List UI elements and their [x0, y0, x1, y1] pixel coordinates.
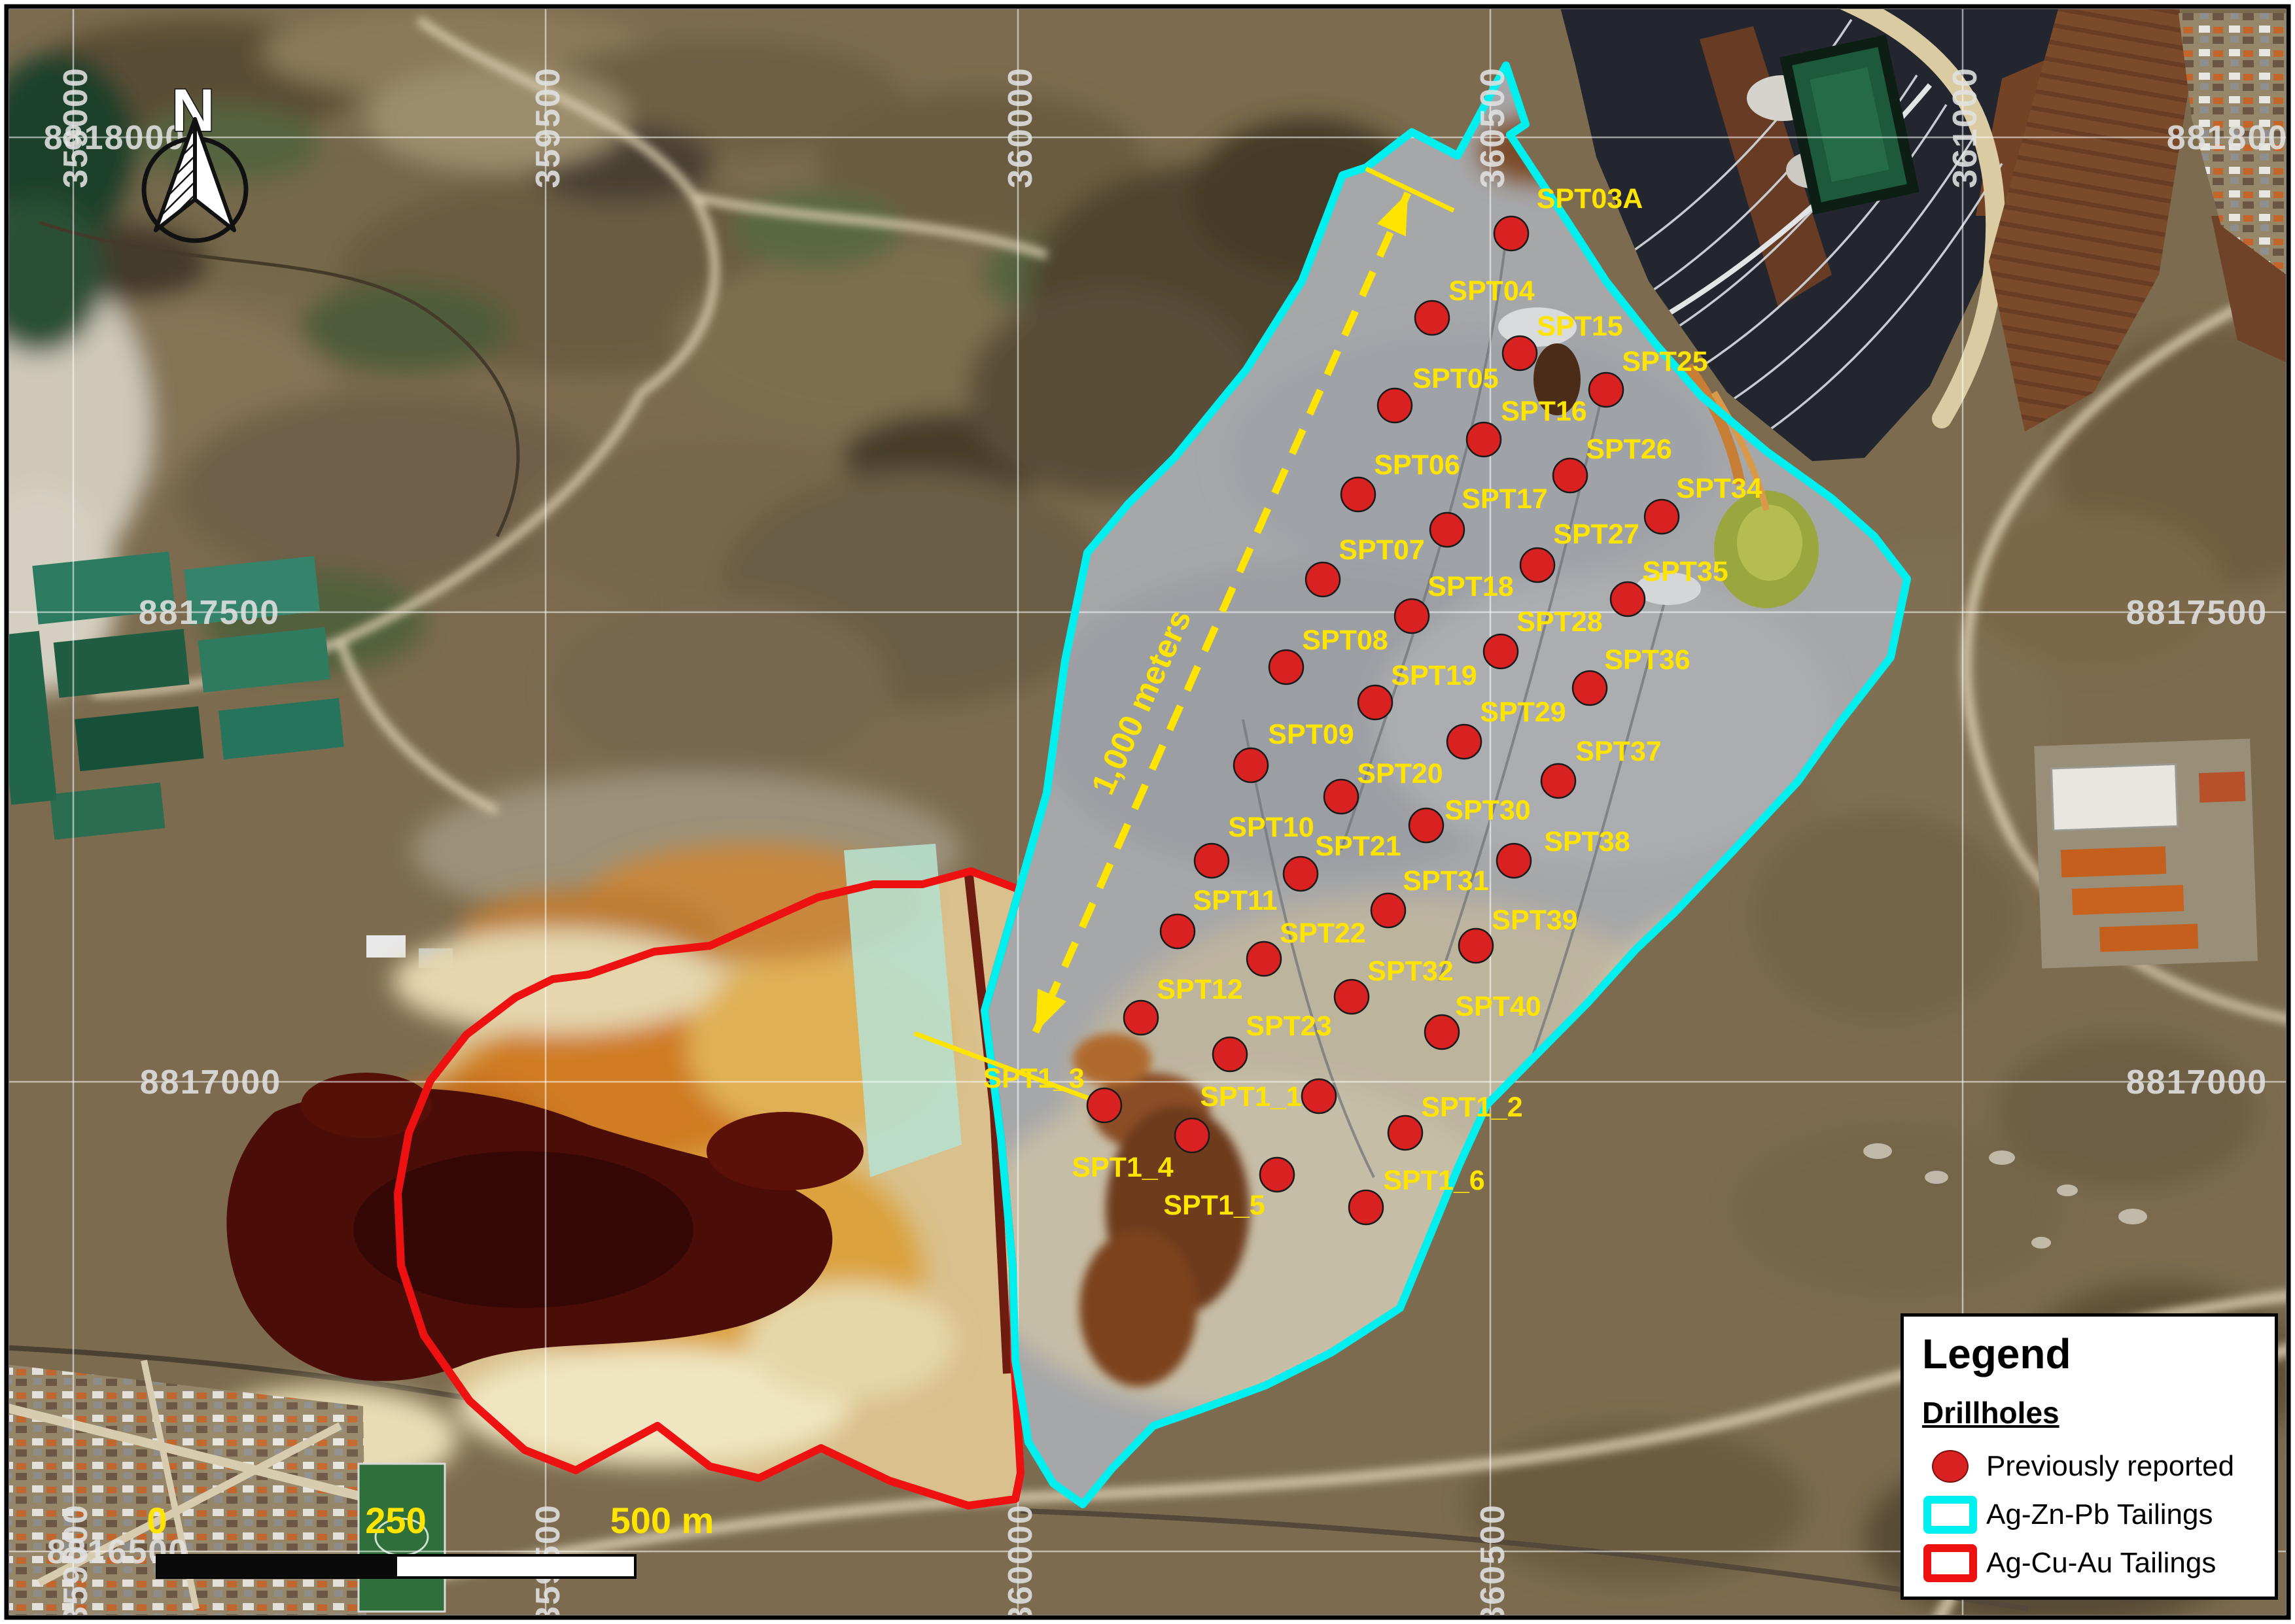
legend-red-swatch-icon [1923, 1544, 1977, 1582]
drillhole-dot-SPT21[interactable] [1284, 857, 1318, 891]
drillhole-dot-SPT1_6[interactable] [1349, 1190, 1383, 1224]
drillhole-dot-SPT27[interactable] [1520, 548, 1554, 582]
drillhole-dot-SPT19[interactable] [1358, 685, 1392, 719]
processing-facility [2034, 738, 2258, 968]
legend-item-label: Ag-Zn-Pb Tailings [1986, 1498, 2213, 1531]
drillhole-dot-SPT23[interactable] [1213, 1037, 1247, 1071]
drillhole-label-SPT1_5: SPT1_5 [1163, 1190, 1265, 1221]
drillhole-dot-SPT1_5[interactable] [1260, 1158, 1294, 1192]
grid-label-top: 359500 [529, 67, 567, 188]
grid-label-top: 361000 [1946, 67, 1984, 188]
legend-item-label: Previously reported [1986, 1450, 2234, 1483]
drillhole-label-SPT26: SPT26 [1586, 434, 1672, 465]
drillhole-dot-SPT36[interactable] [1573, 671, 1607, 705]
drillhole-label-SPT05: SPT05 [1412, 363, 1498, 394]
drillhole-dot-SPT07[interactable] [1306, 562, 1340, 596]
drillhole-dot-SPT18[interactable] [1395, 599, 1429, 633]
drillhole-label-SPT27: SPT27 [1553, 519, 1639, 550]
drillhole-label-SPT09: SPT09 [1268, 719, 1354, 750]
drillhole-label-SPT25: SPT25 [1622, 346, 1708, 377]
legend-item-label: Ag-Cu-Au Tailings [1986, 1547, 2216, 1580]
drillhole-label-SPT37: SPT37 [1575, 736, 1661, 767]
drillhole-label-SPT36: SPT36 [1604, 644, 1690, 676]
drillhole-label-SPT40: SPT40 [1455, 991, 1541, 1022]
grid-label-bottom: 360500 [1474, 1504, 1512, 1624]
drillhole-label-SPT1_4: SPT1_4 [1072, 1152, 1173, 1183]
drillhole-dot-SPT40[interactable] [1425, 1015, 1459, 1049]
drillhole-label-SPT07: SPT07 [1339, 534, 1424, 566]
drillhole-dot-SPT32[interactable] [1335, 980, 1369, 1014]
drillhole-dot-SPT34[interactable] [1645, 500, 1679, 534]
drillhole-dot-SPT1_1[interactable] [1302, 1079, 1336, 1113]
drillhole-label-SPT03A: SPT03A [1537, 183, 1643, 215]
legend-items: Previously reportedAg-Zn-Pb TailingsAg-C… [1922, 1442, 2275, 1587]
drillhole-dot-SPT1_4[interactable] [1175, 1118, 1209, 1152]
drillhole-label-SPT22: SPT22 [1280, 918, 1365, 949]
legend-title: Legend [1922, 1330, 2275, 1378]
drillhole-dot-SPT26[interactable] [1553, 458, 1587, 492]
grid-label-left: 8817000 [140, 1063, 281, 1101]
drillhole-label-SPT08: SPT08 [1302, 625, 1388, 656]
drillhole-dot-SPT22[interactable] [1247, 942, 1281, 976]
scalebar-label: 250 [365, 1500, 426, 1541]
drillhole-label-SPT19: SPT19 [1391, 660, 1477, 691]
drillhole-label-SPT12: SPT12 [1157, 974, 1242, 1005]
drillhole-dot-SPT37[interactable] [1541, 764, 1575, 798]
drillhole-label-SPT11: SPT11 [1193, 885, 1277, 916]
drillhole-dot-SPT04[interactable] [1415, 301, 1449, 335]
drillhole-dot-SPT31[interactable] [1371, 893, 1405, 927]
drillhole-label-SPT20: SPT20 [1357, 758, 1443, 789]
legend-section-drillholes: Drillholes [1922, 1395, 2275, 1430]
drillhole-label-SPT28: SPT28 [1516, 606, 1602, 638]
drillhole-dot-SPT17[interactable] [1430, 513, 1464, 547]
drillhole-label-SPT10: SPT10 [1228, 812, 1314, 843]
drillhole-label-SPT31: SPT31 [1403, 865, 1488, 897]
drillhole-label-SPT1_1: SPT1_1 [1200, 1081, 1301, 1113]
grid-label-right: 8817000 [2126, 1063, 2268, 1101]
grid-label-top: 360500 [1474, 67, 1512, 188]
grid-label-right: 8817500 [2126, 594, 2268, 632]
legend-panel: Legend Drillholes Previously reportedAg-… [1901, 1313, 2278, 1600]
grid-label-left: 8817500 [139, 594, 280, 632]
drillhole-dot-SPT15[interactable] [1503, 336, 1537, 370]
legend-item: Ag-Zn-Pb Tailings [1922, 1491, 2275, 1539]
scalebar-label: 500 m [610, 1500, 714, 1541]
drillhole-dot-SPT16[interactable] [1467, 423, 1501, 457]
legend-item: Previously reported [1922, 1442, 2275, 1491]
drillhole-label-SPT1_3: SPT1_3 [983, 1063, 1084, 1094]
drillhole-label-SPT39: SPT39 [1492, 905, 1577, 936]
drillhole-dot-SPT12[interactable] [1124, 1001, 1158, 1035]
drillhole-dot-SPT35[interactable] [1611, 582, 1645, 616]
drillhole-label-SPT1_2: SPT1_2 [1421, 1092, 1522, 1123]
drillhole-dot-SPT08[interactable] [1269, 650, 1303, 684]
drillhole-dot-SPT1_2[interactable] [1388, 1116, 1422, 1150]
drillhole-label-SPT17: SPT17 [1462, 483, 1547, 515]
drillhole-label-SPT34: SPT34 [1676, 473, 1762, 504]
grid-label-right: 8818000 [2167, 119, 2295, 157]
drillhole-dot-SPT09[interactable] [1234, 748, 1268, 782]
drillhole-dot-SPT11[interactable] [1161, 914, 1195, 948]
drillhole-dot-SPT29[interactable] [1447, 725, 1481, 759]
drillhole-dot-SPT20[interactable] [1324, 780, 1358, 814]
drillhole-label-SPT23: SPT23 [1246, 1011, 1331, 1042]
drillhole-dot-SPT10[interactable] [1195, 844, 1229, 878]
drillhole-label-SPT38: SPT38 [1544, 826, 1630, 857]
drillhole-label-SPT32: SPT32 [1367, 956, 1453, 987]
legend-cyan-swatch-icon [1923, 1496, 1977, 1534]
drillhole-dot-SPT28[interactable] [1484, 634, 1518, 668]
drillhole-label-SPT18: SPT18 [1428, 571, 1513, 602]
drillhole-label-SPT35: SPT35 [1642, 556, 1728, 587]
drillhole-label-SPT16: SPT16 [1501, 396, 1586, 427]
drillhole-dot-SPT30[interactable] [1409, 808, 1443, 842]
scalebar-label: 0 [147, 1500, 167, 1541]
drillhole-label-SPT15: SPT15 [1537, 311, 1622, 342]
drillhole-dot-SPT03A[interactable] [1494, 216, 1528, 251]
drillhole-label-SPT1_6: SPT1_6 [1383, 1165, 1484, 1196]
drillhole-label-SPT21: SPT21 [1315, 831, 1401, 862]
drillhole-label-SPT29: SPT29 [1480, 697, 1566, 728]
grid-label-top: 360000 [1002, 67, 1040, 188]
drillhole-dot-SPT25[interactable] [1589, 373, 1623, 407]
legend-dot-icon [1932, 1450, 1969, 1483]
drillhole-dot-SPT05[interactable] [1378, 389, 1412, 423]
scalebar-black-segment [157, 1555, 397, 1578]
drillhole-dot-SPT38[interactable] [1497, 844, 1531, 878]
drillhole-dot-SPT39[interactable] [1459, 929, 1493, 963]
drillhole-label-SPT06: SPT06 [1374, 449, 1460, 481]
drillhole-label-SPT04: SPT04 [1448, 275, 1535, 307]
drillhole-dot-SPT1_3[interactable] [1087, 1088, 1121, 1122]
drillhole-dot-SPT06[interactable] [1341, 477, 1375, 511]
legend-item: Ag-Cu-Au Tailings [1922, 1539, 2275, 1587]
drillhole-label-SPT30: SPT30 [1445, 795, 1530, 826]
grid-label-bottom: 360000 [1002, 1504, 1040, 1624]
map-page: 1,000 meters SPT03ASPT04SPT15SPT25SPT05S… [0, 0, 2295, 1624]
